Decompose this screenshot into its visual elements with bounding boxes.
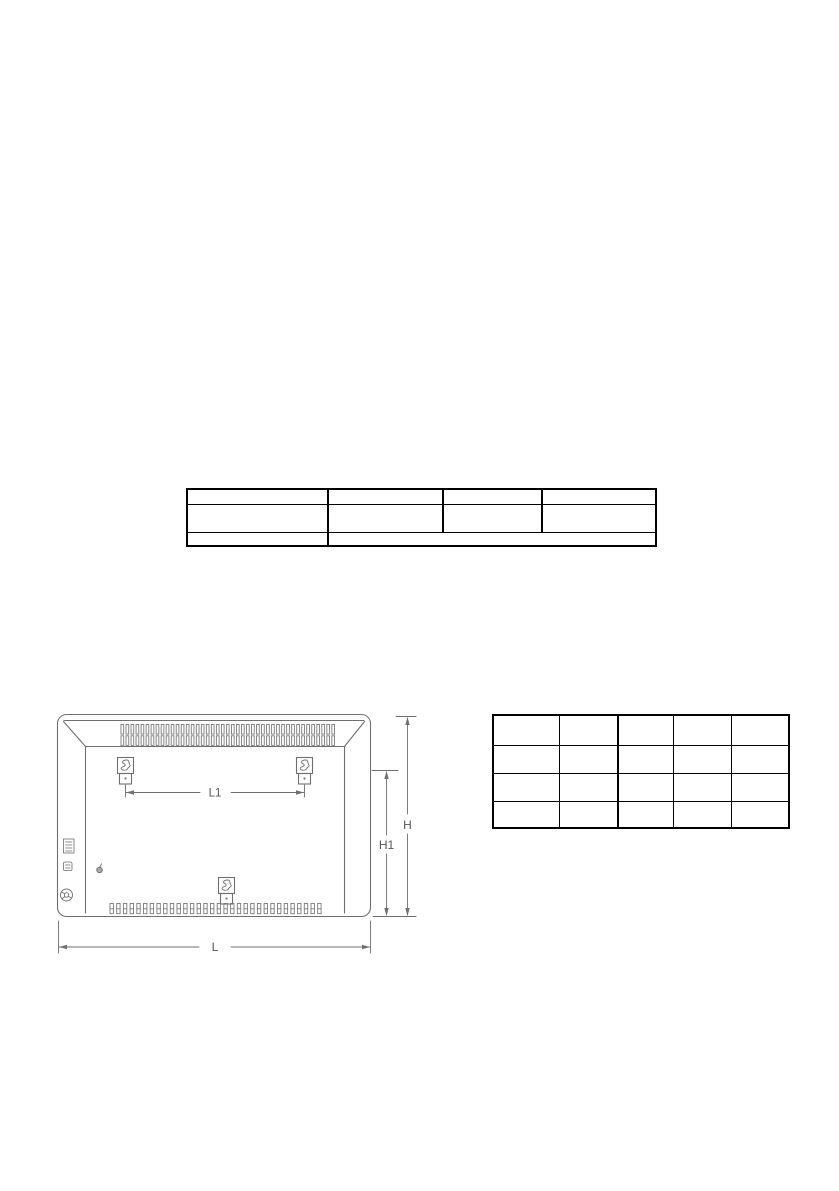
table-cell bbox=[493, 801, 559, 828]
table-cell bbox=[443, 504, 542, 532]
table-cell bbox=[731, 801, 789, 828]
table-cell bbox=[328, 504, 443, 532]
top-air-grille bbox=[121, 725, 335, 746]
table-cell bbox=[493, 745, 559, 773]
table-cell bbox=[443, 489, 542, 504]
table-cell bbox=[559, 773, 618, 801]
table-cell bbox=[618, 745, 673, 773]
bottom-air-slots bbox=[110, 904, 321, 914]
dimension-label-l: L bbox=[212, 940, 219, 954]
table-cell bbox=[731, 745, 789, 773]
bracket-top-right bbox=[297, 758, 313, 785]
table-cell bbox=[542, 489, 656, 504]
table-cell bbox=[673, 715, 731, 745]
table-cell bbox=[542, 504, 656, 532]
power-cord-icon bbox=[97, 864, 103, 873]
table-cell bbox=[673, 745, 731, 773]
table-cell bbox=[618, 715, 673, 745]
dimension-label-h: H bbox=[403, 818, 412, 832]
table-cell bbox=[559, 801, 618, 828]
table-cell bbox=[559, 745, 618, 773]
document-page: L1 H H1 L bbox=[0, 0, 839, 1191]
table-cell bbox=[673, 773, 731, 801]
table-cell bbox=[731, 773, 789, 801]
table-cell bbox=[559, 715, 618, 745]
bracket-top-left bbox=[118, 758, 134, 785]
bracket-bottom-center bbox=[219, 878, 235, 905]
bevel-top-right bbox=[345, 722, 365, 747]
table-cell-merged bbox=[328, 532, 656, 546]
dimension-h bbox=[373, 717, 416, 917]
heater-rear-view-diagram: L1 H H1 L bbox=[45, 700, 430, 965]
table-cell bbox=[187, 489, 328, 504]
cable-gland-icon bbox=[61, 889, 73, 901]
table-cell bbox=[618, 773, 673, 801]
spec-table bbox=[186, 488, 657, 547]
dimension-table bbox=[492, 714, 790, 829]
bevel-top-left bbox=[64, 722, 86, 747]
table-cell bbox=[493, 715, 559, 745]
table-cell bbox=[187, 532, 328, 546]
switch-icon bbox=[64, 862, 73, 871]
table-cell bbox=[731, 715, 789, 745]
dimension-label-l1: L1 bbox=[209, 788, 222, 800]
rating-label-icon bbox=[64, 839, 75, 853]
table-cell bbox=[328, 489, 443, 504]
table-cell bbox=[673, 801, 731, 828]
dimension-label-h1: H1 bbox=[379, 838, 395, 852]
table-cell bbox=[493, 773, 559, 801]
table-cell bbox=[618, 801, 673, 828]
table-cell bbox=[187, 504, 328, 532]
